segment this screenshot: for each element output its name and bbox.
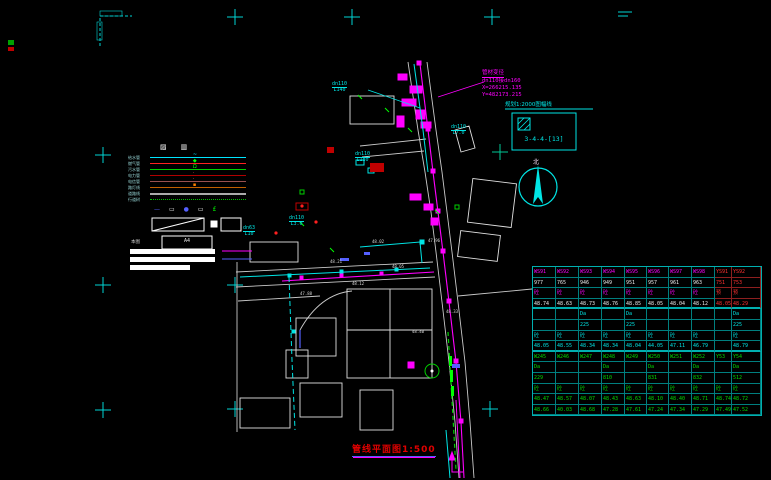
table-cell: 48.12 [692, 299, 715, 310]
table-cell: W245 [533, 352, 556, 363]
table-cell: 48.74 [533, 299, 556, 310]
table-cell: 砼 [732, 331, 761, 342]
table-cell: 砼 [533, 384, 556, 395]
table-cell [556, 373, 579, 384]
junction-annotation: 管材变径 dn110接dn160 X=266215.135 Y=482173.2… [482, 70, 522, 99]
table-cell: 48.85 [625, 299, 647, 310]
table-cell [669, 309, 692, 320]
table-cell: 48.68 [579, 405, 602, 416]
table-cell: 47.11 [669, 341, 692, 352]
table-cell [647, 320, 669, 331]
table-cell: 48.66 [533, 405, 556, 416]
table-cell: Da [692, 362, 715, 373]
north-arrow-icon [519, 165, 557, 206]
table-cell: 砼 [669, 384, 692, 395]
table-cell [579, 373, 602, 384]
table-cell: W247 [579, 352, 602, 363]
table-cell: Da [533, 362, 556, 373]
table-cell [669, 320, 692, 331]
table-cell: 48.55 [556, 341, 579, 352]
water-pipes [240, 64, 450, 478]
table-cell: 963 [692, 278, 715, 289]
table-cell: WS96 [647, 267, 669, 278]
table-cell: 48.29 [732, 299, 761, 310]
table-cell: 229 [533, 373, 556, 384]
table-cell: 48.04 [625, 341, 647, 352]
table-cell: 砼 [556, 288, 579, 299]
legend-line-marker: ▪ [193, 182, 196, 188]
edge-marks [8, 40, 14, 51]
legend-line-sample [150, 169, 246, 170]
table-cell: 946 [579, 278, 602, 289]
legend-symbol: ▭ [198, 206, 204, 214]
table-cell: W251 [669, 352, 692, 363]
table-cell: 48.73 [579, 299, 602, 310]
table-cell: 47.29 [692, 405, 715, 416]
sheet-number: 3-4-4-[13] [514, 135, 574, 143]
table-cell [625, 362, 647, 373]
drawing-title: 管线平面图1:500 [352, 442, 436, 457]
pipe-label: dn110L140 [332, 82, 347, 93]
table-cell: 砼 [647, 331, 669, 342]
table-cell: 48.71 [692, 394, 715, 405]
table-cell [715, 373, 732, 384]
table-cell: 48.63 [625, 394, 647, 405]
table-cell: 48.07 [579, 394, 602, 405]
table-cell: 832 [692, 373, 715, 384]
table-cell: 48.04 [669, 299, 692, 310]
pipe-data-table: WS91WS92WS93WS94WS95WS96WS97WS98YS91YS92… [532, 266, 762, 416]
table-cell: 47.52 [732, 405, 761, 416]
table-cell: 225 [579, 320, 602, 331]
legend-symbol: ▭ [169, 206, 175, 214]
table-cell: Da [732, 362, 761, 373]
legend-frame-label: A4 [162, 238, 212, 244]
north-label: 北 [533, 157, 539, 166]
table-cell: Da [579, 309, 602, 320]
table-cell: WS91 [533, 267, 556, 278]
table-cell: WS98 [692, 267, 715, 278]
table-cell: Y53 [715, 352, 732, 363]
junction-title: 管材变径 [482, 70, 504, 78]
legend-row: 行道树 [128, 197, 246, 203]
pipe-label: dn110L3.0 [289, 216, 304, 227]
spot-elevation: 47.96 [428, 238, 440, 243]
legend-symbol: — [154, 206, 160, 214]
table-cell: 48.34 [602, 341, 625, 352]
table-cell: 48.43 [602, 394, 625, 405]
table-cell: 砼 [579, 384, 602, 395]
table-cell: 48.76 [602, 299, 625, 310]
table-cell: 951 [625, 278, 647, 289]
table-cell: 751 [715, 278, 732, 289]
table-cell: 砼 [625, 384, 647, 395]
table-cell: W248 [602, 352, 625, 363]
table-cell: 砼 [625, 331, 647, 342]
legend-line-sample [150, 181, 246, 182]
table-cell: 砼 [602, 288, 625, 299]
table-cell: WS92 [556, 267, 579, 278]
junction-size: dn110接dn160 [482, 78, 522, 85]
pipe-label: dn110L180 [355, 152, 370, 163]
table-cell [715, 331, 732, 342]
legend: ▨ ▥ 给水管~燃气管◆污水管Ω电力管·电信管·路灯线▪道路线行道树 —▭●▭£ [128, 143, 246, 214]
table-cell: Da [732, 309, 761, 320]
table-cell: 949 [602, 278, 625, 289]
table-cell [692, 320, 715, 331]
table-cell: 753 [732, 278, 761, 289]
cable-marks [300, 252, 460, 368]
legend-line-sample [150, 199, 246, 200]
table-cell [715, 362, 732, 373]
table-cell: W249 [625, 352, 647, 363]
table-cell: Da [625, 309, 647, 320]
table-cell: 47.24 [647, 405, 669, 416]
table-cell: 831 [647, 373, 669, 384]
table-cell [556, 309, 579, 320]
legend-rows: 给水管~燃气管◆污水管Ω电力管·电信管·路灯线▪道路线行道树 [128, 155, 246, 203]
sheet-note: 规划1:2000图幅线 [505, 100, 552, 108]
table-cell: 砼 [556, 384, 579, 395]
table-cell: 48.47 [533, 394, 556, 405]
table-cell: WS97 [669, 267, 692, 278]
table-cell: W252 [692, 352, 715, 363]
table-cell: 砼 [647, 384, 669, 395]
table-cell: 47.49 [715, 405, 732, 416]
table-cell: 预 [715, 288, 732, 299]
table-cell: 48.63 [556, 299, 579, 310]
legend-row-label: 行道树 [128, 197, 140, 203]
table-cell: 48.79 [732, 341, 761, 352]
table-cell: 砼 [533, 288, 556, 299]
table-cell: WS94 [602, 267, 625, 278]
table-cell [715, 320, 732, 331]
sheet-index-box [505, 109, 593, 150]
table-cell: 961 [669, 278, 692, 289]
legend-header-glyph: ▨ [160, 143, 167, 155]
table-cell: 48.40 [669, 394, 692, 405]
table-cell: 47.61 [625, 405, 647, 416]
table-cell: 砼 [625, 288, 647, 299]
table-cell: Y54 [732, 352, 761, 363]
table-cell: 810 [602, 373, 625, 384]
table-cell: 砼 [556, 331, 579, 342]
table-cell: 砼 [602, 331, 625, 342]
table-cell: 48.34 [579, 341, 602, 352]
cad-viewport: 管材变径 dn110接dn160 X=266215.135 Y=482173.2… [0, 0, 771, 480]
table-cell: YS92 [732, 267, 761, 278]
table-cell [715, 341, 732, 352]
table-cell [556, 320, 579, 331]
legend-line-sample [150, 157, 246, 158]
spot-elevation: 48.21 [330, 259, 342, 264]
table-cell: WS95 [625, 267, 647, 278]
table-cell: 48.57 [556, 394, 579, 405]
table-cell: 47.28 [602, 405, 625, 416]
table-cell [579, 362, 602, 373]
table-cell: YS91 [715, 267, 732, 278]
legend-shape-symbols [130, 218, 252, 270]
table-cell: 48.05 [647, 299, 669, 310]
table-cell: 48.10 [647, 394, 669, 405]
table-cell: 砼 [692, 384, 715, 395]
table-cell: 砼 [692, 331, 715, 342]
spot-elevation: 47.88 [300, 291, 312, 296]
table-cell: 225 [625, 320, 647, 331]
table-cell: WS93 [579, 267, 602, 278]
table-cell: 砼 [533, 331, 556, 342]
table-cell: 砼 [732, 384, 761, 395]
spot-elevation: 48.02 [372, 239, 384, 244]
table-cell: 砼 [647, 288, 669, 299]
table-cell: 225 [732, 320, 761, 331]
table-cell [533, 309, 556, 320]
table-cell: Da [602, 362, 625, 373]
table-cell: W246 [556, 352, 579, 363]
spot-elevation: 48.40 [412, 329, 424, 334]
table-cell [715, 309, 732, 320]
table-cell: 40.03 [556, 405, 579, 416]
table-cell [647, 309, 669, 320]
legend-line-sample [150, 193, 246, 195]
table-cell: 48.05 [533, 341, 556, 352]
pipe-label: dn63L10 [243, 226, 255, 237]
spot-elevation: 48.12 [352, 281, 364, 286]
table-cell: 48.72 [732, 394, 761, 405]
legend-symbol: £ [213, 206, 217, 214]
table-cell: 砼 [602, 384, 625, 395]
junction-x: X=266215.135 [482, 85, 522, 92]
table-cell: 977 [533, 278, 556, 289]
table-cell [669, 362, 692, 373]
table-cell: 砼 [669, 331, 692, 342]
junction-y: Y=482173.215 [482, 92, 522, 99]
table-cell: 砼 [692, 288, 715, 299]
table-cell: 48.05 [715, 299, 732, 310]
legend-line-sample [150, 175, 246, 176]
table-cell: 砼 [579, 331, 602, 342]
table-cell: 512 [732, 373, 761, 384]
legend-header: ▨ ▥ [128, 143, 246, 155]
table-cell [602, 320, 625, 331]
table-cell: 957 [647, 278, 669, 289]
legend-line-sample [150, 163, 246, 164]
table-cell: 47.34 [669, 405, 692, 416]
table-cell: 砼 [669, 288, 692, 299]
table-cell: 765 [556, 278, 579, 289]
table-cell: 砼 [715, 384, 732, 395]
legend-line-sample [150, 187, 246, 188]
spot-elevation: 48.33 [446, 309, 458, 314]
legend-symbol: ● [184, 206, 189, 214]
table-cell: 48.74 [715, 394, 732, 405]
table-cell [669, 373, 692, 384]
table-cell [692, 309, 715, 320]
table-cell: 44.05 [647, 341, 669, 352]
table-cell: 砼 [579, 288, 602, 299]
legend-note: 本图 [131, 239, 140, 245]
buildings [240, 96, 517, 430]
legend-symbol-row: —▭●▭£ [128, 206, 246, 214]
legend-header-glyph: ▥ [181, 143, 188, 155]
spot-elevation: 48.05 [392, 264, 404, 269]
table-cell [625, 373, 647, 384]
table-cell [602, 309, 625, 320]
table-cell: W250 [647, 352, 669, 363]
table-cell [533, 320, 556, 331]
pipe-label: dn110L7.0 [451, 125, 466, 136]
table-cell: 46.79 [692, 341, 715, 352]
table-cell: Da [647, 362, 669, 373]
table-cell: 预 [732, 288, 761, 299]
table-cell [556, 362, 579, 373]
